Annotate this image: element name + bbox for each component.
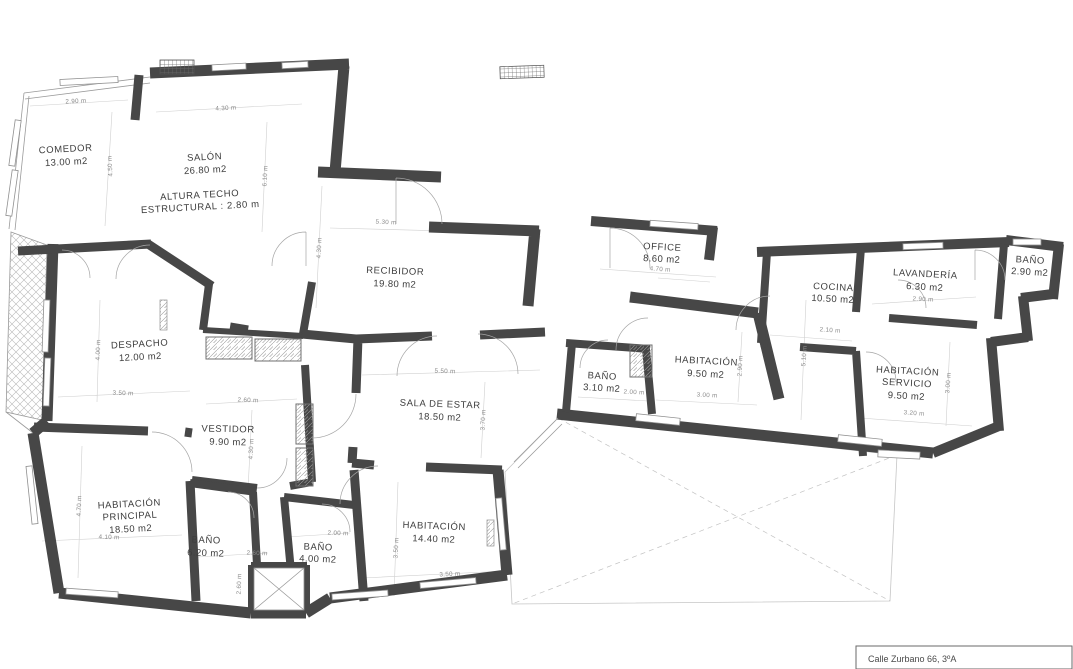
svg-text:BAÑO: BAÑO — [587, 370, 617, 383]
ceiling-height-note: ALTURA TECHO ESTRUCTURAL : 2.80 m — [140, 187, 260, 216]
svg-text:RECIBIDOR: RECIBIDOR — [366, 265, 425, 278]
svg-text:12.00 m2: 12.00 m2 — [119, 351, 162, 364]
room-label-cocina: COCINA 10.50 m2 — [811, 281, 855, 306]
dim-label: 3.50 m — [439, 570, 460, 578]
svg-text:10.50 m2: 10.50 m2 — [811, 293, 854, 306]
room-label-lavanderia: LAVANDERÍA 6.30 m2 — [892, 267, 958, 294]
floor-plan-canvas: COMEDOR 13.00 m2 SALÓN 26.80 m2 ALTURA T… — [0, 0, 1073, 669]
dim-label: 4.70 m — [76, 495, 84, 516]
svg-text:13.00 m2: 13.00 m2 — [45, 156, 88, 169]
room-label-habitacion-14: HABITACIÓN 14.40 m2 — [402, 520, 466, 546]
vent-grille — [160, 60, 194, 74]
svg-text:BAÑO: BAÑO — [303, 541, 333, 553]
dim-label: 4.30 m — [315, 237, 323, 258]
svg-text:SALA DE ESTAR: SALA DE ESTAR — [400, 398, 481, 412]
dim-label: 5.10 m — [800, 345, 808, 366]
svg-text:HABITACIÓN: HABITACIÓN — [402, 520, 466, 533]
svg-text:26.80 m2: 26.80 m2 — [184, 164, 227, 177]
svg-text:9.50 m2: 9.50 m2 — [687, 368, 725, 381]
vent-grille — [500, 65, 544, 79]
svg-text:SERVICIO: SERVICIO — [882, 377, 933, 391]
svg-text:VESTIDOR: VESTIDOR — [201, 424, 255, 436]
svg-text:9.90 m2: 9.90 m2 — [209, 437, 246, 449]
dim-label: 3.70 m — [479, 409, 487, 430]
room-label-despacho: DESPACHO 12.00 m2 — [111, 338, 170, 365]
dim-label: 2.60 m — [246, 550, 267, 558]
room-label-sala-estar: SALA DE ESTAR 18.50 m2 — [399, 398, 481, 425]
svg-text:3.10 m2: 3.10 m2 — [583, 382, 621, 395]
room-label-office: OFFICE 8.60 m2 — [642, 241, 682, 266]
dim-label: 2.00 m — [623, 388, 644, 396]
radiator — [487, 520, 494, 546]
room-label-bano-4: BAÑO 4.00 m2 — [299, 541, 337, 565]
room-label-bano-6: BAÑO 6.20 m2 — [187, 534, 225, 559]
svg-text:COCINA: COCINA — [813, 281, 854, 294]
svg-text:LAVANDERÍA: LAVANDERÍA — [893, 267, 958, 281]
svg-text:4.00 m2: 4.00 m2 — [299, 553, 337, 565]
svg-text:19.80 m2: 19.80 m2 — [373, 278, 416, 290]
room-label-hab-servicio: HABITACIÓN SERVICIO 9.50 m2 — [874, 364, 939, 403]
radiator — [160, 300, 167, 330]
svg-text:14.40 m2: 14.40 m2 — [412, 533, 455, 545]
title-block: Calle Zurbano 66, 3ºA — [856, 646, 1072, 669]
dim-label: 3.00 m — [696, 391, 717, 399]
walls-layer — [18, 64, 1063, 613]
dim-label: 4.30 m — [247, 438, 255, 459]
dim-label: 2.10 m — [819, 326, 840, 334]
dim-label: 5.50 m — [434, 368, 455, 376]
svg-text:BAÑO: BAÑO — [191, 534, 221, 546]
address-label: Calle Zurbano 66, 3ºA — [868, 654, 956, 664]
svg-text:BAÑO: BAÑO — [1015, 254, 1045, 267]
dim-label: 3.00 m — [944, 372, 952, 393]
dim-label: 2.60 m — [236, 573, 244, 594]
dim-label: 3.50 m — [112, 390, 133, 398]
dim-label: 3.50 m — [392, 537, 400, 558]
floor-plan-page: COMEDOR 13.00 m2 SALÓN 26.80 m2 ALTURA T… — [0, 0, 1073, 669]
room-label-vestidor: VESTIDOR 9.90 m2 — [201, 424, 255, 449]
svg-text:ESTRUCTURAL : 2.80 m: ESTRUCTURAL : 2.80 m — [141, 199, 260, 216]
svg-text:COMEDOR: COMEDOR — [39, 143, 93, 157]
svg-text:6.20 m2: 6.20 m2 — [187, 547, 225, 559]
lightwell-shaft — [254, 568, 304, 610]
dim-label: 6.10 m — [261, 165, 269, 186]
room-label-bano-superior: BAÑO 2.90 m2 — [1011, 254, 1049, 279]
dim-label: 2.90 m — [912, 295, 933, 303]
dim-label: 4.70 m — [649, 265, 670, 273]
room-label-salon: SALÓN 26.80 m2 — [183, 151, 227, 177]
dim-label: 2.00 m — [327, 530, 348, 538]
room-label-comedor: COMEDOR 13.00 m2 — [39, 143, 94, 170]
svg-text:OFFICE: OFFICE — [643, 241, 682, 254]
svg-text:8.60 m2: 8.60 m2 — [643, 253, 681, 266]
svg-text:PRINCIPAL: PRINCIPAL — [102, 510, 157, 524]
dim-label: 4.00 m — [95, 339, 103, 360]
svg-text:HABITACIÓN: HABITACIÓN — [674, 354, 738, 368]
svg-text:2.90 m2: 2.90 m2 — [1011, 266, 1049, 279]
dim-label: 2.90 m — [736, 355, 744, 376]
dim-label: 3.20 m — [903, 409, 924, 417]
svg-text:18.50 m2: 18.50 m2 — [418, 411, 461, 423]
dim-label: 2.60 m — [237, 397, 258, 405]
dim-label: 2.90 m — [65, 97, 86, 105]
room-label-habitacion-9: HABITACIÓN 9.50 m2 — [674, 354, 739, 381]
svg-text:6.30 m2: 6.30 m2 — [906, 281, 944, 294]
room-label-recibidor: RECIBIDOR 19.80 m2 — [366, 265, 425, 291]
dim-label: 4.30 m — [215, 104, 236, 112]
dim-label: 5.30 m — [375, 218, 396, 226]
dim-label: 4.10 m — [98, 534, 119, 542]
room-label-hab-principal: HABITACIÓN PRINCIPAL 18.50 m2 — [97, 497, 162, 536]
dim-label: 4.50 m — [106, 155, 114, 176]
svg-text:SALÓN: SALÓN — [187, 151, 223, 164]
svg-text:DESPACHO: DESPACHO — [111, 338, 169, 352]
room-label-bano-3: BAÑO 3.10 m2 — [583, 370, 621, 395]
svg-text:9.50 m2: 9.50 m2 — [888, 390, 926, 403]
